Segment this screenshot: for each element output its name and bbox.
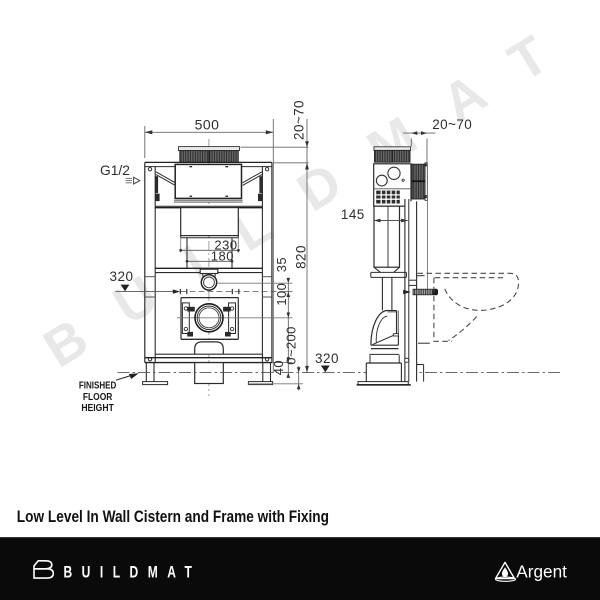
svg-text:320: 320 [315, 351, 339, 366]
svg-text:FINISHED: FINISHED [79, 380, 117, 391]
svg-text:20~70: 20~70 [292, 100, 307, 140]
svg-text:FLOOR: FLOOR [83, 392, 113, 403]
svg-text:100: 100 [274, 283, 289, 306]
svg-text:35: 35 [274, 257, 289, 272]
svg-text:G1/2: G1/2 [100, 163, 130, 178]
svg-text:500: 500 [195, 116, 220, 132]
svg-text:Low Level In Wall Cistern and: Low Level In Wall Cistern and Frame with… [17, 508, 329, 526]
svg-text:0~200: 0~200 [284, 326, 299, 365]
svg-text:HEIGHT: HEIGHT [81, 403, 114, 414]
svg-text:320: 320 [109, 269, 133, 284]
svg-text:180: 180 [211, 249, 234, 264]
svg-text:820: 820 [294, 245, 309, 269]
svg-text:145: 145 [341, 207, 365, 222]
svg-text:20~70: 20~70 [432, 117, 472, 132]
svg-text:Argent: Argent [516, 562, 567, 582]
svg-text:BUILDMAT: BUILDMAT [64, 564, 202, 582]
